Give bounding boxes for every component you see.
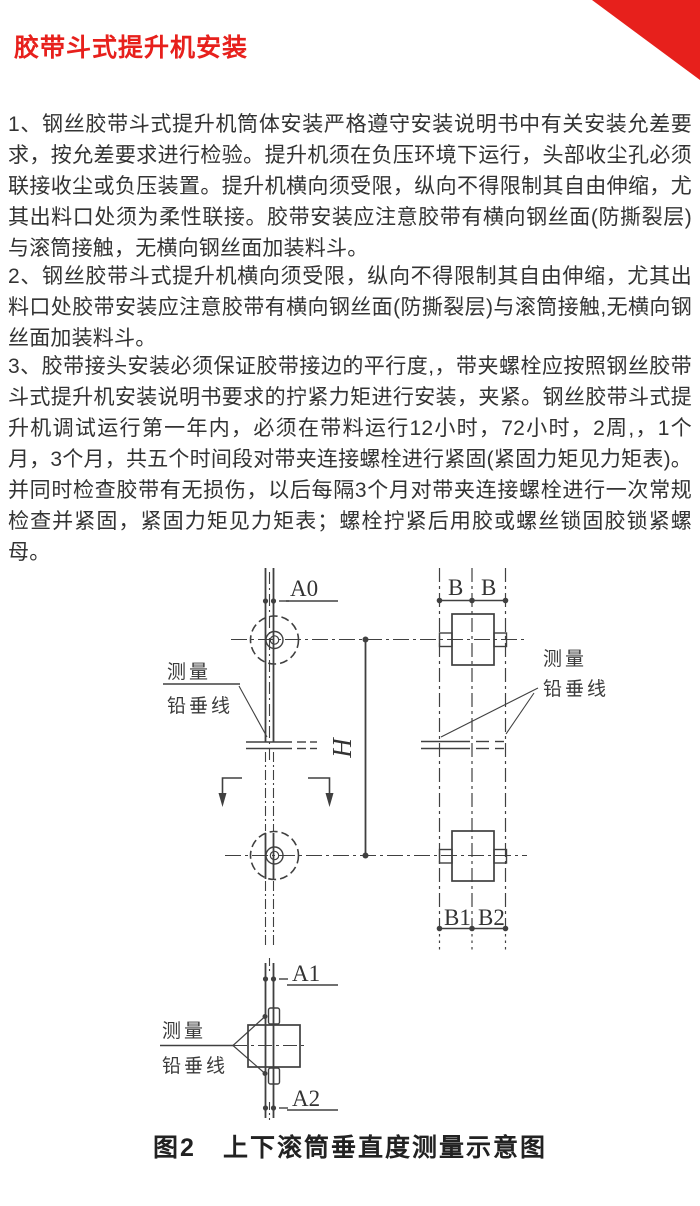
- figure-caption: 图2 上下滚筒垂直度测量示意图: [0, 1128, 700, 1164]
- bottom-roller-side-view: [437, 831, 509, 952]
- label-a1: A1: [292, 961, 320, 986]
- measure-text-top-left-1: 测量: [167, 661, 211, 683]
- measure-text-top-left-2: 铅垂线: [167, 695, 233, 717]
- top-roller-side-view: [421, 568, 538, 929]
- measure-text-top-right-2: 铅垂线: [543, 678, 609, 700]
- belt-direction-arrows: [219, 778, 334, 807]
- label-b-left: B: [448, 575, 463, 600]
- measure-label-top-left: [163, 684, 267, 737]
- label-h: H: [327, 737, 357, 759]
- measure-text-top-right-1: 测量: [543, 648, 587, 670]
- page-title: 胶带斗式提升机安装: [14, 28, 574, 64]
- label-b1: B1: [444, 905, 471, 930]
- label-a2: A2: [292, 1086, 320, 1111]
- head-roller-detail: [160, 958, 338, 1120]
- h-dimension: [225, 637, 527, 859]
- paragraph-2: 2、钢丝胶带斗式提升机横向须受限，纵向不得限制其自由伸缩，尤其出料口处胶带安装应…: [0, 261, 700, 354]
- bottom-roller-front-view: [251, 832, 299, 949]
- top-roller-front-view: [246, 568, 338, 831]
- label-a0: A0: [290, 576, 318, 601]
- measure-text-bottom-2: 铅垂线: [162, 1055, 228, 1077]
- label-b2: B2: [478, 905, 505, 930]
- measure-text-bottom-1: 测量: [162, 1020, 206, 1042]
- label-b-right: B: [481, 575, 496, 600]
- paragraph-1: 1、钢丝胶带斗式提升机筒体安装严格遵守安装说明书中有关安装允差要求，按允差要求进…: [0, 109, 700, 264]
- paragraph-3: 3、胶带接头安装必须保证胶带接边的平行度,，带夹螺栓应按照钢丝胶带斗式提升机安装…: [0, 351, 700, 568]
- corner-ribbon: [592, 0, 700, 80]
